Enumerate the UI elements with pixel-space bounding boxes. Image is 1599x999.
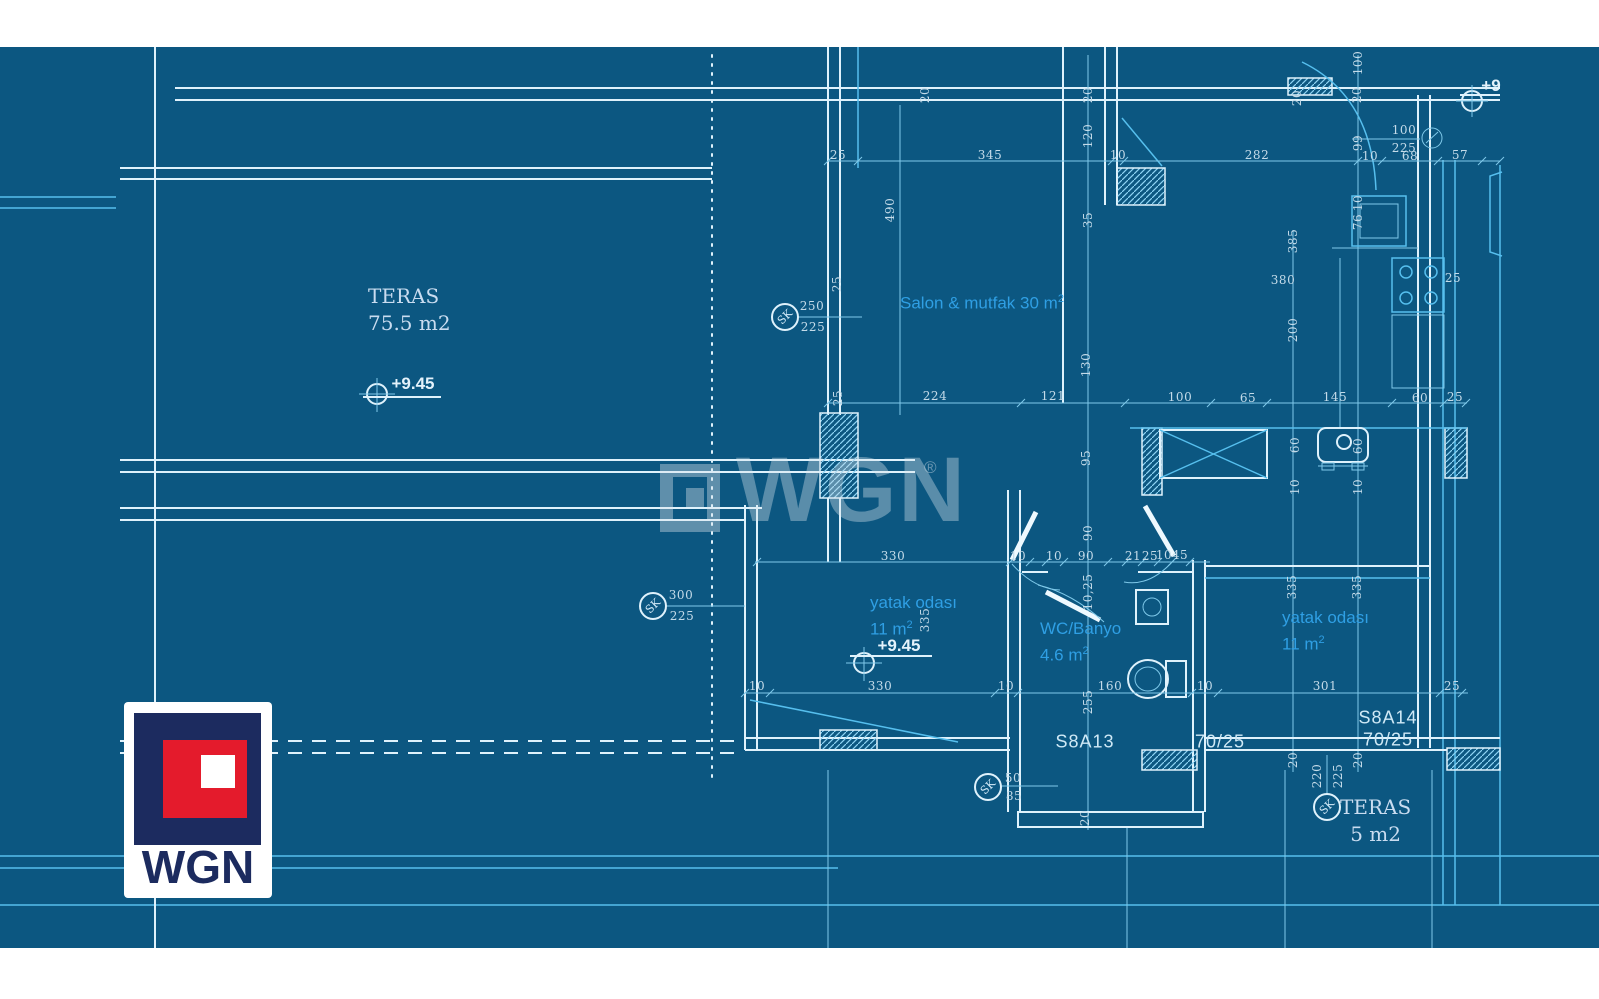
dimension-label: 20 (918, 87, 932, 103)
wgn-watermark: WGN ® (648, 452, 948, 544)
dimension-label: 10,25 (1081, 574, 1095, 611)
dimension-label: 25 (1445, 271, 1461, 285)
dimension-label: 60 (1351, 438, 1365, 454)
dimension-label: 21 (1125, 549, 1141, 563)
wgn-logo: WGN (124, 702, 272, 898)
dimension-label: 100 (1351, 51, 1365, 75)
registered-trademark-icon: ® (924, 458, 937, 478)
marker-numerator: 100 (1392, 123, 1416, 137)
marker-denominator: 85 (1006, 789, 1022, 803)
room-label-teras-small: TERAS5 m2 (1340, 794, 1411, 848)
dimension-label: 10 (998, 679, 1014, 693)
plan-code-label: 70/25 (1195, 732, 1245, 753)
plan-code-label: S8A13 (1055, 732, 1114, 753)
elevation-value: +9 (1481, 76, 1500, 96)
dimension-label: 65 (1240, 391, 1256, 405)
wgn-logo-red-square (163, 740, 247, 818)
dimension-label: 224 (923, 389, 947, 403)
dimension-label: 10 (1010, 549, 1026, 563)
dimension-label: 335 (1285, 575, 1299, 599)
dimension-label: 121 (1041, 389, 1065, 403)
dimension-label: 60 (1412, 391, 1428, 405)
dimension-label: 301 (1313, 679, 1337, 693)
elevation-value: +9.45 (391, 374, 434, 394)
sk-symbol-letter: SK (978, 777, 998, 797)
dimension-label: 25 (830, 148, 846, 162)
dimension-label: 10 (749, 679, 765, 693)
dimension-label: 95 (1079, 450, 1093, 466)
room-label-bedroom-left: yatak odası11 m2 (870, 592, 957, 641)
marker-denominator: 225 (1331, 764, 1345, 788)
sk-symbol-letter: SK (1317, 797, 1337, 817)
dimension-label: 10 (1351, 479, 1365, 495)
room-label-bedroom-right: yatak odası11 m2 (1282, 607, 1369, 656)
dimension-label: 255 (1081, 690, 1095, 714)
dimension-label: 330 (881, 549, 905, 563)
room-label-salon: Salon & mutfak 30 m2 (900, 288, 1064, 315)
dimension-label: 10 (1046, 549, 1062, 563)
dimension-label: 335 (1350, 575, 1364, 599)
dimension-label: 25 (1447, 390, 1463, 404)
dimension-label: 25 (1444, 679, 1460, 693)
dimension-label: 10 (1351, 195, 1365, 211)
wgn-logo-text: WGN (124, 840, 272, 894)
marker-denominator: 225 (801, 320, 825, 334)
dimension-label: 25 (830, 276, 844, 292)
dimension-label: 45 (1172, 548, 1188, 562)
plan-code-label: S8A14 (1358, 708, 1417, 729)
marker-numerator: 250 (800, 299, 824, 313)
blueprint-photo: 2534510282106857100202020201209949035107… (0, 0, 1599, 999)
marker-numerator: 50 (1005, 771, 1021, 785)
dimension-label: 20 (1290, 90, 1304, 106)
plan-code-label: 70/25 (1363, 730, 1413, 751)
dimension-label: 345 (978, 148, 1002, 162)
dimension-label: 90 (1081, 525, 1095, 541)
dimension-label: 10 (1110, 148, 1126, 162)
dimension-label: 330 (868, 679, 892, 693)
dimension-label: 145 (1323, 390, 1347, 404)
dimension-label: 90 (1078, 549, 1094, 563)
dimension-label: 100 (1168, 390, 1192, 404)
room-label-teras-main: TERAS75.5 m2 (368, 283, 451, 337)
room-label-wc-banyo: WC/Banyo4.6 m2 (1040, 618, 1121, 667)
dimension-label: 385 (1286, 229, 1300, 253)
dimension-label: 57 (1452, 148, 1468, 162)
marker-numerator: 220 (1310, 764, 1324, 788)
dimension-label: 490 (883, 198, 897, 222)
marker-denominator: 225 (670, 609, 694, 623)
dimension-label: 20 (1078, 810, 1092, 826)
dimension-label: 20 (1351, 752, 1365, 768)
sk-symbol-letter: SK (643, 596, 663, 616)
dimension-label: 10 (1156, 548, 1172, 562)
dimension-label: 282 (1245, 148, 1269, 162)
dimension-label: 20 (1081, 87, 1095, 103)
marker-numerator: 300 (669, 588, 693, 602)
wgn-watermark-icon (660, 464, 720, 532)
marker-denominator: 225 (1392, 141, 1416, 155)
wgn-watermark-icon-inner-square (686, 488, 704, 507)
dimension-label: 35 (1081, 212, 1095, 228)
wgn-logo-navy-square (134, 713, 261, 845)
dimension-label: 99 (1351, 135, 1365, 151)
dimension-label: 60 (1288, 437, 1302, 453)
dimension-label: 20 (1286, 752, 1300, 768)
dimension-label: 130 (1079, 353, 1093, 377)
dimension-label: 10 (1197, 679, 1213, 693)
dimension-label: 160 (1098, 679, 1122, 693)
wgn-logo-white-square (201, 755, 235, 788)
dimension-label: 20 (1350, 87, 1364, 103)
dimension-label: 25 (831, 390, 845, 406)
dimension-label: 380 (1271, 273, 1295, 287)
sk-symbol-letter: SK (775, 307, 795, 327)
dimension-label: 76 (1351, 214, 1365, 230)
dimension-label: 10 (1288, 479, 1302, 495)
wgn-watermark-text: WGN (736, 438, 967, 543)
dimension-label: 200 (1286, 318, 1300, 342)
dimension-label: 120 (1081, 124, 1095, 148)
